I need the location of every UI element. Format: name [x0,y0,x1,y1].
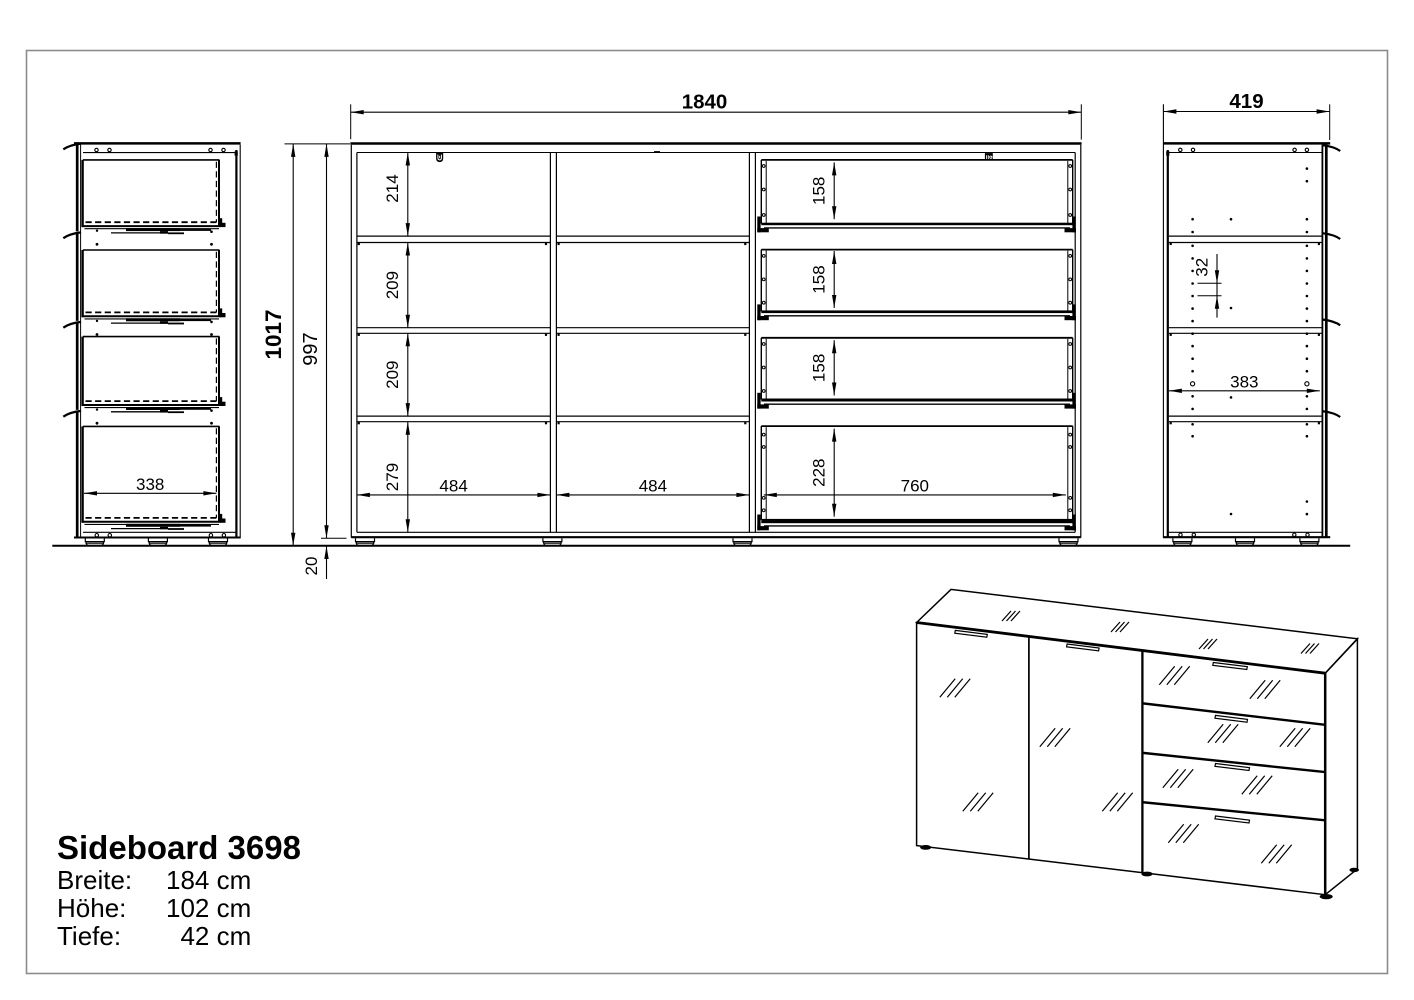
svg-text:338: 338 [136,475,164,494]
svg-text:1840: 1840 [682,91,728,114]
svg-text:997: 997 [300,332,322,365]
svg-text:1017: 1017 [261,309,286,359]
svg-text:32: 32 [1192,258,1211,277]
svg-text:20: 20 [302,557,321,576]
svg-text:228: 228 [810,459,829,487]
svg-text:214: 214 [383,174,402,202]
svg-text:419: 419 [1229,90,1263,113]
svg-text:383: 383 [1230,372,1258,391]
svg-text:209: 209 [383,361,402,389]
svg-text:760: 760 [901,476,929,495]
svg-text:484: 484 [639,476,667,495]
svg-text:484: 484 [439,476,467,495]
svg-text:158: 158 [810,354,829,382]
svg-text:158: 158 [810,177,829,205]
svg-text:279: 279 [383,463,402,491]
svg-text:209: 209 [383,271,402,299]
svg-text:158: 158 [810,265,829,293]
